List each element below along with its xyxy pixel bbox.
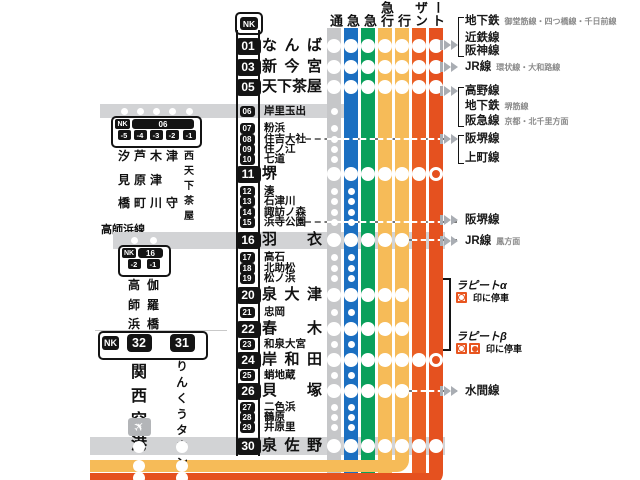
stop-dot: [331, 404, 338, 411]
transfer-line-name: 水間線: [465, 385, 500, 397]
stop-circle: [344, 384, 358, 398]
station-name: 岸和田: [262, 351, 322, 369]
transfer-line-name: 近鉄線: [465, 32, 500, 44]
station-badge: 28: [240, 412, 255, 423]
transfer-dashed-line: [378, 221, 392, 223]
column-header-airport-express: 行: [394, 14, 410, 27]
stop-circle: [412, 60, 426, 74]
stop-circle: [395, 167, 409, 181]
rapit-beta-rule: 印に停車: [456, 342, 522, 355]
stop-circle: [133, 460, 145, 472]
transfer-dashed-line: [361, 138, 375, 140]
transfer-line-detail: 堺筋線: [505, 101, 529, 113]
station-badge: 09: [240, 144, 255, 155]
stop-circle: [176, 472, 188, 480]
station-badge: 26: [236, 383, 261, 400]
station-name: なんば: [262, 37, 322, 55]
branch-station-name: 西天下茶屋: [182, 147, 196, 211]
station-badge: 18: [240, 263, 255, 274]
stop-circle: [327, 233, 341, 247]
transfer-line-item: JR線鳳方面: [465, 235, 520, 248]
station-badge: 10: [240, 154, 255, 165]
stop-circle: [378, 439, 392, 453]
station-name: 関西空港: [130, 358, 148, 420]
station-name: りんくうタウン: [175, 358, 189, 442]
stop-circle: [378, 80, 392, 94]
transfer-dashed-line: [412, 390, 426, 392]
stop-circle: [378, 384, 392, 398]
station-badge: 23: [240, 339, 255, 350]
branch-station-name: 伽羅橋: [146, 276, 160, 332]
stop-circle: [344, 233, 358, 247]
stop-circle: [361, 288, 375, 302]
stop-dot: [331, 372, 338, 379]
stop-dot: [348, 309, 355, 316]
station-name: 七道: [264, 153, 285, 165]
transfer-line-detail: 鳳方面: [496, 236, 520, 248]
stop-dot: [331, 424, 338, 431]
transfer-chevron-icon: [440, 134, 458, 144]
station-badge: 15: [240, 217, 255, 228]
stop-dot: [186, 108, 193, 115]
station-badge: 32: [127, 334, 152, 352]
stop-circle: [344, 353, 358, 367]
station-name: 和泉大宮: [264, 338, 306, 350]
station-badge: 03: [236, 59, 261, 76]
stop-circle: [395, 60, 409, 74]
station-name: 蛸地蔵: [264, 369, 296, 381]
station-name: 堺: [262, 165, 322, 183]
stop-circle: [378, 353, 392, 367]
stop-dot: [331, 275, 338, 282]
transfer-line-name: JR線: [465, 235, 491, 247]
transfer-line-item: 阪堺線: [465, 133, 500, 145]
stop-circle: [378, 233, 392, 247]
stop-ring: [429, 167, 443, 181]
transfer-chevron-icon: [440, 40, 458, 50]
stop-circle: [327, 353, 341, 367]
transfer-line-name: JR線: [465, 61, 491, 73]
stop-circle: [327, 80, 341, 94]
column-header-southern: ザン: [411, 1, 427, 27]
stop-circle: [361, 233, 375, 247]
transfer-line-item: 水間線: [465, 385, 500, 397]
stop-dot: [169, 108, 176, 115]
stop-dot: [348, 219, 355, 226]
transfer-line-item: 高野線: [465, 85, 500, 97]
stop-dot: [131, 237, 138, 244]
transfer-chevron-icon: [440, 386, 458, 396]
station-badge: 29: [240, 422, 255, 433]
station-badge: 20: [236, 287, 261, 304]
stop-dot: [348, 341, 355, 348]
station-badge: 17: [240, 252, 255, 263]
transfer-dashed-line: [361, 221, 375, 223]
branch-sub-number: -1: [147, 259, 160, 269]
stop-circle: [361, 322, 375, 336]
stop-circle: [361, 39, 375, 53]
transfer-dashed-line: [378, 138, 392, 140]
branch-station-name: 津守: [165, 147, 179, 211]
stop-circle: [133, 472, 145, 480]
transfer-line-item: 阪神線: [465, 45, 500, 57]
station-name: 泉大津: [262, 286, 322, 304]
stop-dot: [331, 254, 338, 261]
station-badge: 11: [236, 166, 261, 183]
stop-circle: [395, 80, 409, 94]
branch-station-name: 汐見橋: [117, 147, 131, 211]
stop-circle: [361, 167, 375, 181]
stop-circle: [344, 322, 358, 336]
stop-circle: [344, 288, 358, 302]
station-name: 浜寺公園: [264, 216, 306, 228]
stop-dot: [331, 136, 338, 143]
operator-code: NK: [240, 17, 258, 30]
stop-dot: [153, 108, 160, 115]
white-circle-mark-icon: [456, 343, 467, 354]
stop-circle: [327, 167, 341, 181]
stop-circle: [395, 39, 409, 53]
branch-station-name: 木津川: [149, 147, 163, 211]
stop-dot: [348, 198, 355, 205]
transfer-line-detail: 京都・北千里方面: [505, 116, 569, 128]
transfer-chevron-icon: [440, 86, 458, 96]
station-name: 井原里: [264, 421, 296, 433]
stop-ring: [429, 353, 443, 367]
transfer-line-name: 阪堺線: [465, 214, 500, 226]
column-header-express: 急行: [377, 1, 393, 27]
station-badge: 08: [240, 134, 255, 145]
column-header-rapit: ート: [428, 1, 444, 27]
station-badge: 05: [236, 79, 261, 96]
stop-dot: [331, 341, 338, 348]
transfer-line-detail: 環状線・大和路線: [496, 62, 560, 74]
transfer-line-item: 近鉄線: [465, 32, 500, 44]
stop-circle: [344, 439, 358, 453]
stop-circle: [378, 167, 392, 181]
transfer-line-name: 地下鉄: [465, 15, 500, 27]
transfer-dashed-line: [395, 221, 409, 223]
station-badge: 07: [240, 123, 255, 134]
transfer-line-item: 地下鉄堺筋線: [465, 100, 529, 113]
stop-dot: [331, 209, 338, 216]
station-badge: 01: [236, 38, 261, 55]
branch-sub-number: -2: [166, 130, 179, 140]
branch-sub-number: -4: [134, 130, 147, 140]
transfer-chevron-icon: [440, 215, 458, 225]
stop-dot: [348, 404, 355, 411]
stop-dot: [348, 265, 355, 272]
transfer-line-item: 地下鉄御堂筋線・四つ橋線・千日前線: [465, 15, 617, 28]
transfer-chevron-icon: [440, 62, 458, 72]
branch-sub-number: -2: [128, 259, 141, 269]
transfer-line-item: JR線環状線・大和路線: [465, 61, 560, 74]
stop-circle: [378, 39, 392, 53]
legend-bracket: [458, 17, 464, 57]
stop-dot: [331, 188, 338, 195]
station-badge: 25: [240, 370, 255, 381]
stop-circle: [412, 439, 426, 453]
stop-circle: [395, 322, 409, 336]
transfer-line-name: 阪堺線: [465, 133, 500, 145]
station-badge: 22: [236, 321, 261, 338]
stop-circle: [361, 60, 375, 74]
stop-dot: [331, 219, 338, 226]
stop-circle: [176, 460, 188, 472]
station-badge: 30: [236, 438, 261, 455]
stop-circle: [344, 60, 358, 74]
station-name: 羽衣: [262, 231, 322, 249]
station-name: 新今宮: [262, 58, 322, 76]
stop-circle: [395, 439, 409, 453]
column-header-sub-express: 急: [360, 14, 376, 27]
stop-circle: [395, 384, 409, 398]
transfer-line-item: 阪堺線: [465, 214, 500, 226]
transfer-chevron-icon: [440, 236, 458, 246]
stop-circle: [327, 384, 341, 398]
branch-station-name: 芦原町: [133, 147, 147, 211]
station-name: 貝塚: [262, 382, 322, 400]
transfer-dashed-line: [395, 138, 409, 140]
station-name: 岸里玉出: [264, 105, 306, 117]
service-column-sub-express: [361, 28, 375, 480]
station-name: 忠岡: [264, 306, 285, 318]
stop-circle: [412, 80, 426, 94]
stop-dot: [331, 198, 338, 205]
stop-circle: [176, 441, 188, 453]
station-badge: 19: [240, 273, 255, 284]
stop-dot: [331, 309, 338, 316]
transfer-line-name: 阪神線: [465, 45, 500, 57]
transfer-dashed-line: [412, 221, 426, 223]
transfer-line-detail: 御堂筋線・四つ橋線・千日前線: [505, 16, 617, 28]
stop-circle: [378, 322, 392, 336]
column-header-semi-express: 急: [343, 14, 359, 27]
station-badge: 16: [236, 232, 261, 249]
stop-dot: [331, 156, 338, 163]
legend-bracket: [458, 135, 464, 164]
stop-circle: [395, 353, 409, 367]
branch-parent-number: 06: [132, 119, 194, 129]
legend-bracket: [458, 87, 464, 127]
service-column-express: [378, 28, 392, 480]
stop-dot: [348, 254, 355, 261]
transfer-dashed-line: [412, 138, 426, 140]
station-badge: 06: [240, 106, 255, 117]
stop-dot: [348, 372, 355, 379]
stop-circle: [395, 233, 409, 247]
stop-dot: [348, 414, 355, 421]
stop-circle: [412, 39, 426, 53]
stop-circle: [378, 288, 392, 302]
stop-circle: [133, 441, 145, 453]
stop-circle: [395, 288, 409, 302]
stop-circle: [361, 384, 375, 398]
branch-parent-number: 16: [138, 248, 163, 258]
stop-dot: [331, 108, 338, 115]
station-badge: 14: [240, 207, 255, 218]
station-badge: 13: [240, 196, 255, 207]
stop-dot: [348, 424, 355, 431]
stop-circle: [429, 439, 443, 453]
transfer-dashed-line: [344, 138, 358, 140]
transfer-line-item: 上町線: [465, 152, 500, 164]
transfer-dashed-line: [412, 239, 426, 241]
stop-dot: [150, 237, 157, 244]
station-name: 松ノ浜: [264, 272, 296, 284]
operator-code: NK: [115, 119, 130, 129]
station-name: 天下茶屋: [262, 78, 322, 96]
station-badge: 24: [236, 352, 261, 369]
station-name: 春木: [262, 320, 322, 338]
stop-dot: [137, 108, 144, 115]
stop-circle: [361, 353, 375, 367]
station-badge: 21: [240, 307, 255, 318]
stop-circle: [412, 167, 426, 181]
branch-station-name: 高師浜: [127, 276, 141, 332]
station-badge: 31: [170, 334, 195, 352]
airport-band-rapit-curve: [429, 473, 443, 480]
station-badge: 12: [240, 186, 255, 197]
stop-dot: [331, 125, 338, 132]
transfer-line-name: 阪急線: [465, 115, 500, 127]
station-badge: 27: [240, 402, 255, 413]
rapit-alpha-note: 印に停車: [473, 291, 509, 304]
stop-dot: [348, 188, 355, 195]
stop-circle: [327, 288, 341, 302]
airport-band-express-curve: [395, 460, 409, 472]
white-circle-mark-icon: [456, 292, 467, 303]
transfer-line-item: 阪急線京都・北千里方面: [465, 115, 569, 128]
service-column-southern: [412, 28, 426, 480]
airport-icon: ✈: [128, 418, 151, 436]
branch-sub-number: -1: [183, 130, 196, 140]
stop-circle: [327, 322, 341, 336]
stop-dot: [331, 414, 338, 421]
branch-sub-number: -5: [118, 130, 131, 140]
stop-circle: [344, 39, 358, 53]
transfer-line-name: 地下鉄: [465, 100, 500, 112]
stop-dot: [348, 209, 355, 216]
stop-dot: [331, 265, 338, 272]
stop-circle: [361, 80, 375, 94]
rapit-alpha-rule: 印に停車: [456, 291, 509, 304]
operator-code: NK: [122, 248, 136, 258]
transfer-line-name: 上町線: [465, 152, 500, 164]
stop-dot: [348, 275, 355, 282]
rapit-beta-note: 印に停車: [486, 342, 522, 355]
column-header-local: 通: [326, 14, 342, 27]
stop-circle: [361, 439, 375, 453]
stop-dot: [121, 108, 128, 115]
stop-circle: [327, 60, 341, 74]
stop-dot: [331, 146, 338, 153]
route-map-canvas: NK 高師浜線 ラピートα 印に停車 ラピートβ 印に停車 通急急急行行ザンート…: [0, 0, 640, 480]
stop-circle: [327, 39, 341, 53]
branch-sub-number: -3: [150, 130, 163, 140]
filled-circle-mark-icon: [469, 343, 480, 354]
operator-code: NK: [102, 336, 119, 350]
stop-circle: [412, 353, 426, 367]
station-name: 泉佐野: [262, 437, 322, 455]
stop-circle: [344, 167, 358, 181]
transfer-line-name: 高野線: [465, 85, 500, 97]
stop-circle: [378, 60, 392, 74]
stop-circle: [344, 80, 358, 94]
stop-circle: [327, 439, 341, 453]
